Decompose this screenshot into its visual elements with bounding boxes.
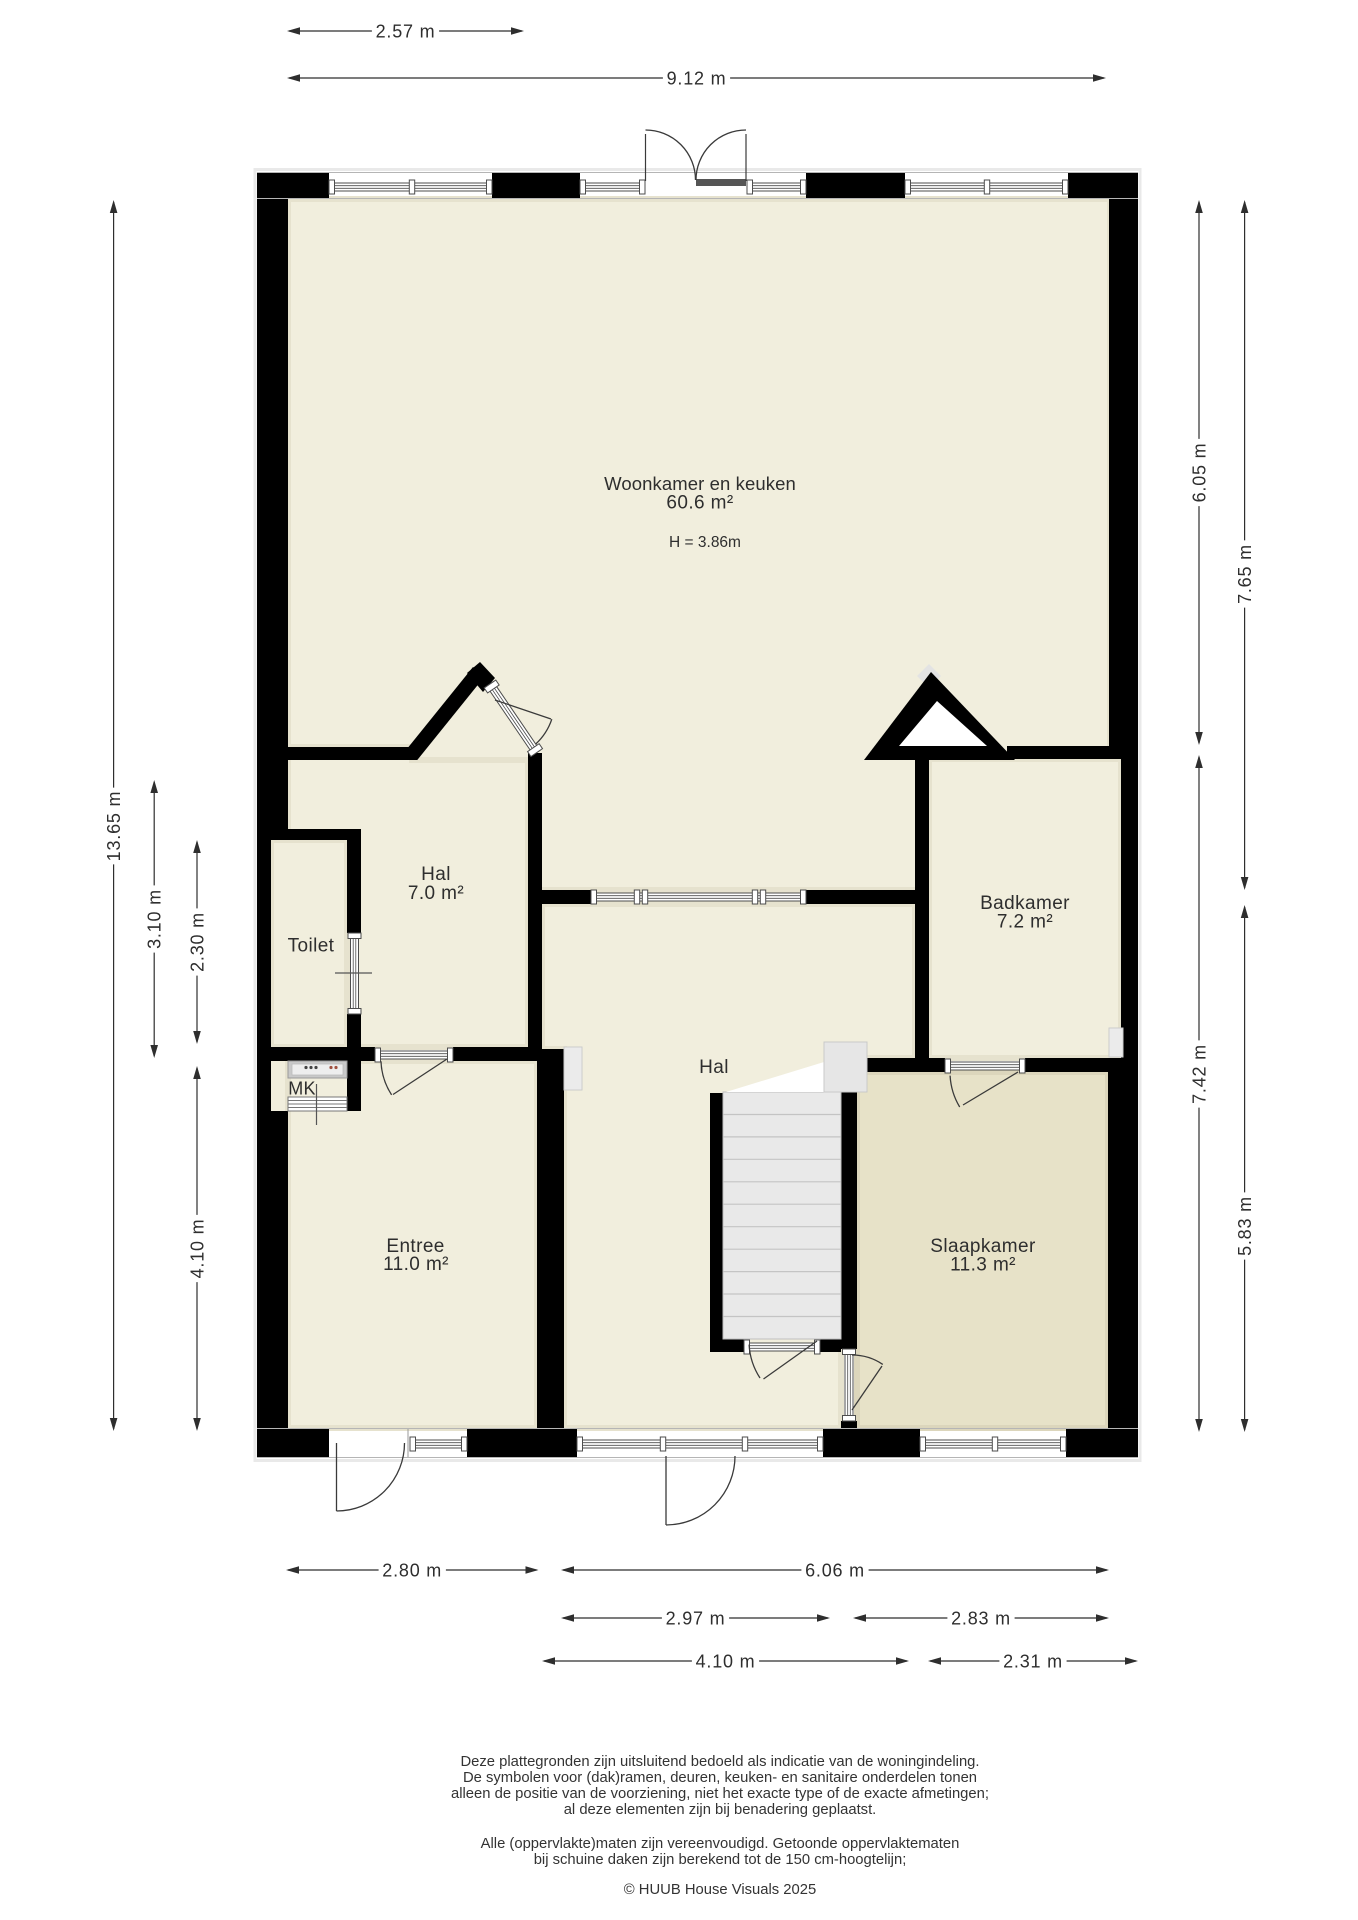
svg-text:De symbolen voor (dak)ramen, d: De symbolen voor (dak)ramen, deuren, keu… [463,1770,977,1786]
svg-text:MK: MK [288,1079,316,1099]
svg-text:7.65 m: 7.65 m [1235,544,1255,604]
svg-text:2.31 m: 2.31 m [1003,1652,1063,1672]
svg-text:6.05 m: 6.05 m [1190,443,1210,503]
svg-text:Toilet: Toilet [288,936,335,957]
svg-text:Woonkamer en keuken: Woonkamer en keuken [604,473,796,494]
svg-text:7.0 m²: 7.0 m² [408,883,464,904]
svg-text:Alle (oppervlakte)maten zijn v: Alle (oppervlakte)maten zijn vereenvoudi… [481,1836,960,1852]
svg-text:Hal: Hal [699,1057,729,1078]
svg-text:6.06 m: 6.06 m [805,1561,865,1581]
svg-text:4.10 m: 4.10 m [188,1219,208,1279]
svg-text:7.2 m²: 7.2 m² [997,912,1053,933]
svg-text:2.83 m: 2.83 m [951,1609,1011,1629]
svg-text:bij schuine daken zijn bereken: bij schuine daken zijn berekend tot de 1… [534,1852,907,1868]
svg-text:2.80 m: 2.80 m [382,1561,442,1581]
svg-text:13.65 m: 13.65 m [104,791,124,862]
svg-text:2.57 m: 2.57 m [376,22,436,42]
svg-text:2.30 m: 2.30 m [188,912,208,972]
svg-text:3.10 m: 3.10 m [145,889,165,949]
svg-text:alleen de positie van de voorz: alleen de positie van de voorziening, ni… [451,1786,989,1802]
svg-text:9.12 m: 9.12 m [667,69,727,89]
svg-text:Hal: Hal [421,864,451,885]
svg-text:11.0 m²: 11.0 m² [383,1254,449,1275]
svg-text:60.6 m²: 60.6 m² [666,493,733,514]
svg-text:H = 3.86m: H = 3.86m [669,534,741,551]
svg-text:2.97 m: 2.97 m [666,1609,726,1629]
svg-text:al deze elementen zijn bij ben: al deze elementen zijn bij benadering ge… [564,1802,877,1818]
svg-text:© HUUB House Visuals 2025: © HUUB House Visuals 2025 [624,1882,816,1898]
svg-text:11.3 m²: 11.3 m² [950,1255,1016,1276]
svg-text:Deze plattegronden zijn uitslu: Deze plattegronden zijn uitsluitend bedo… [460,1754,979,1770]
svg-text:7.42 m: 7.42 m [1190,1044,1210,1104]
svg-text:5.83 m: 5.83 m [1235,1196,1255,1256]
svg-text:4.10 m: 4.10 m [696,1652,756,1672]
